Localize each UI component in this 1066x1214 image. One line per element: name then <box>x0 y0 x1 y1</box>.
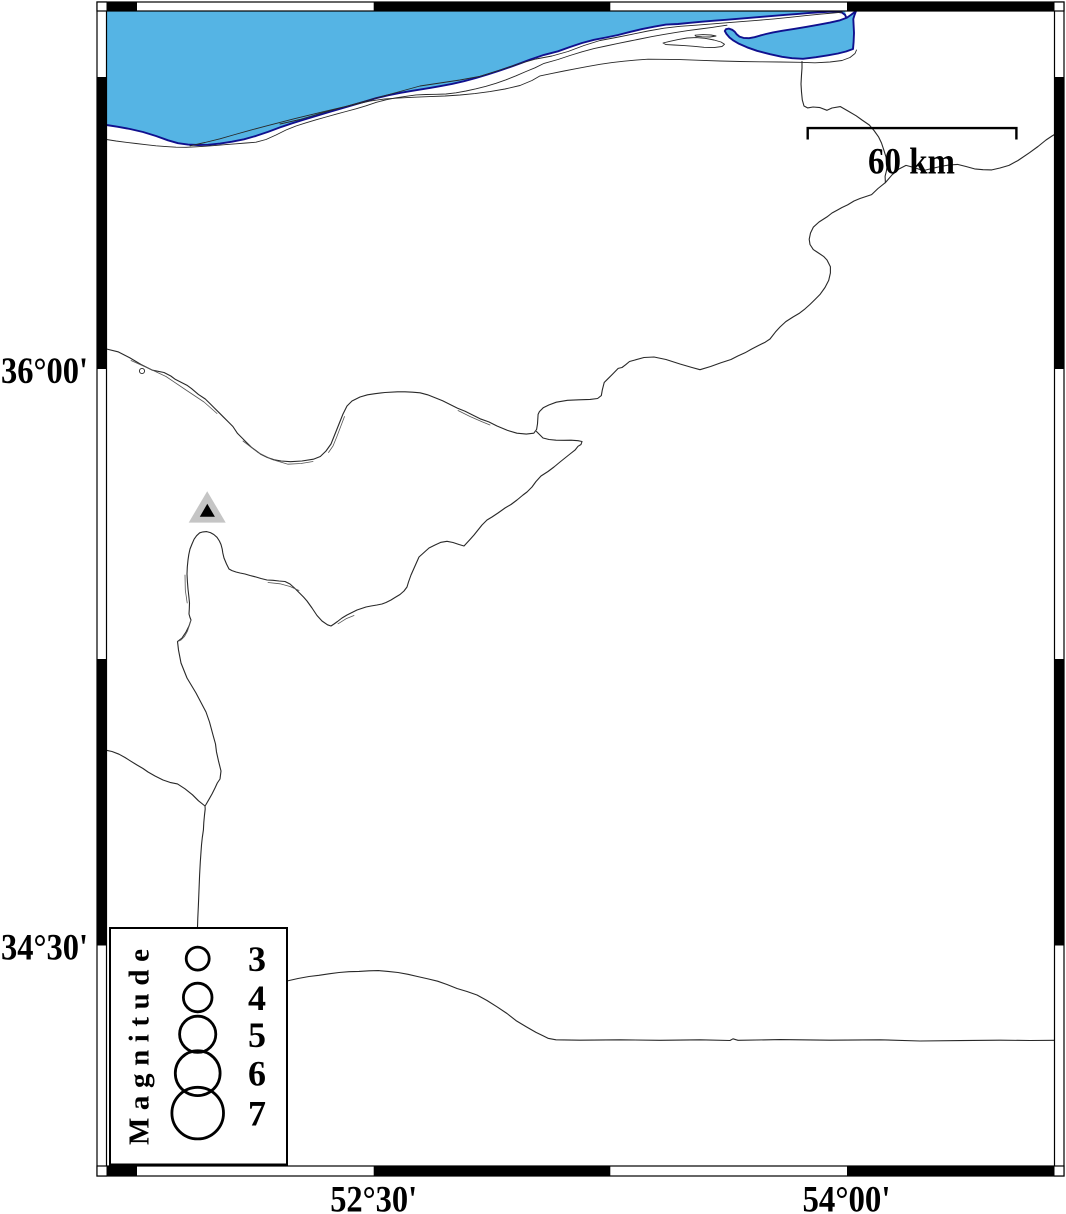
svg-text:36°00': 36°00' <box>1 351 88 392</box>
svg-text:3: 3 <box>248 939 266 979</box>
svg-text:5: 5 <box>248 1015 266 1055</box>
svg-text:52°30': 52°30' <box>330 1180 417 1214</box>
svg-text:60 km: 60 km <box>868 142 955 183</box>
svg-text:54°00': 54°00' <box>803 1180 891 1214</box>
svg-text:7: 7 <box>248 1094 266 1134</box>
svg-text:34°30': 34°30' <box>1 928 88 969</box>
svg-text:6: 6 <box>248 1054 266 1094</box>
svg-text:4: 4 <box>248 978 266 1018</box>
